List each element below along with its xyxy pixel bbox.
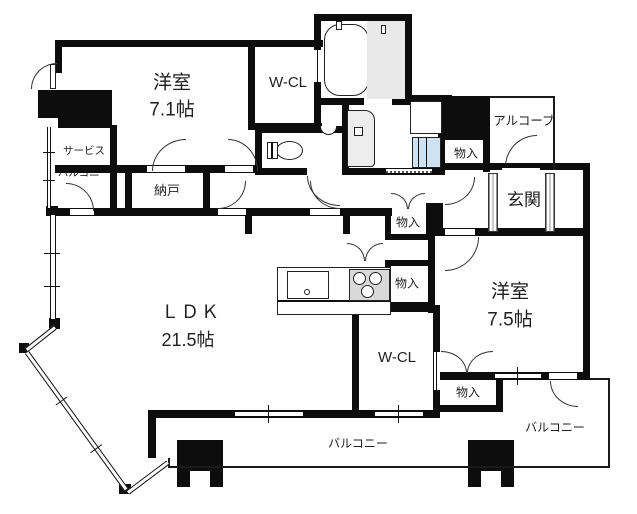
pillar xyxy=(58,118,112,128)
pillar xyxy=(177,471,190,487)
window-tick xyxy=(517,367,518,385)
stove-burner xyxy=(353,272,366,285)
door-opening xyxy=(218,209,246,215)
sliding-door xyxy=(386,169,432,173)
toilet-tank-line xyxy=(271,142,273,159)
vanity-bowl xyxy=(354,127,363,136)
sink-drain xyxy=(304,289,310,295)
window-tick xyxy=(44,286,60,287)
ldk-size-label: 21.5帖 xyxy=(161,331,214,351)
wall xyxy=(55,40,323,47)
genkan-side-frame xyxy=(545,173,555,232)
entrance-door-leaf xyxy=(498,163,540,168)
wall xyxy=(314,14,412,21)
wall xyxy=(405,14,412,102)
alcove-outline xyxy=(490,96,555,98)
pillar xyxy=(468,471,481,487)
balcony-right-label: バルコニー xyxy=(525,421,585,434)
storage-hall-label: 物入 xyxy=(396,216,420,229)
door-opening xyxy=(310,209,340,215)
wall xyxy=(148,410,156,458)
wall xyxy=(385,260,432,266)
closet-door-arc xyxy=(347,243,365,261)
shower-floor xyxy=(367,21,405,99)
washer-line xyxy=(418,138,419,167)
door-swing-arc xyxy=(228,139,258,171)
window xyxy=(50,215,56,319)
wall xyxy=(352,305,359,412)
wall xyxy=(438,163,502,170)
balcony-outline xyxy=(590,378,610,380)
balcony-main-label: バルコニー xyxy=(328,437,388,450)
window xyxy=(495,373,541,379)
stove-burner xyxy=(361,285,374,298)
window-tick xyxy=(268,405,269,423)
nando-label: 納戸 xyxy=(154,184,180,198)
floor-plan: 洋室 7.1帖 W-CL サービス バルコニー 納戸 物入 アルコーブ 玄関 物… xyxy=(0,0,637,514)
bedroom2-name-label: 洋室 xyxy=(491,283,529,304)
ldk-name-label: ＬＤＫ xyxy=(161,303,221,323)
door-opening xyxy=(445,229,475,235)
wall xyxy=(314,98,364,105)
vanity xyxy=(347,110,375,167)
washer-line xyxy=(426,138,427,167)
storage-bedroom2-label: 物入 xyxy=(456,386,480,399)
window-tick xyxy=(43,180,55,181)
shower-faucet-icon xyxy=(381,25,386,34)
door-swing-arc xyxy=(218,181,246,209)
genkan-label: 玄関 xyxy=(507,192,541,211)
door-swing-arc xyxy=(307,176,340,206)
window xyxy=(375,411,423,417)
wcl-top-label: W-CL xyxy=(269,75,307,92)
window-tick xyxy=(44,253,60,254)
door-opening xyxy=(314,50,322,82)
utility-box xyxy=(410,101,442,134)
wcl-bottom-label: W-CL xyxy=(378,350,416,367)
alcove-outline xyxy=(553,96,555,170)
door-swing-arc xyxy=(445,177,475,205)
wall xyxy=(433,405,503,412)
window xyxy=(47,127,51,208)
window-diagonal xyxy=(25,325,56,351)
door-line xyxy=(436,352,437,390)
door-opening xyxy=(434,352,440,390)
door-leaf xyxy=(50,64,56,89)
pillar xyxy=(501,471,514,487)
storage-kitchen-label: 物入 xyxy=(395,277,419,290)
door-line xyxy=(317,50,318,82)
window-tick xyxy=(398,405,399,423)
pillar xyxy=(38,90,112,118)
balcony-outline xyxy=(168,466,610,468)
balcony-outline xyxy=(608,378,610,468)
closet-door-arc xyxy=(408,193,425,209)
wall xyxy=(583,163,590,380)
service-balcony-label-1: サービス xyxy=(63,146,105,158)
window-diagonal xyxy=(126,460,169,494)
bedroom1-name-label: 洋室 xyxy=(153,74,191,95)
genkan-side-frame xyxy=(488,173,498,232)
stove-burner xyxy=(369,272,382,285)
closet-door-arc xyxy=(391,193,408,209)
window xyxy=(235,411,303,417)
window-tick xyxy=(43,152,55,153)
wall xyxy=(385,234,432,240)
wall xyxy=(255,168,307,175)
toilet-bowl xyxy=(276,141,303,160)
bath-faucet-icon xyxy=(336,21,342,30)
bedroom1-size-label: 7.1帖 xyxy=(149,101,194,122)
pipe-shaft xyxy=(445,96,490,140)
window-tick xyxy=(90,444,102,453)
closet-door-arc xyxy=(365,243,383,261)
wall xyxy=(248,40,255,130)
door-opening xyxy=(549,373,577,379)
bathtub xyxy=(324,24,369,96)
storage-entrance-label: 物入 xyxy=(454,147,478,160)
alcove-label: アルコーブ xyxy=(493,115,554,129)
wall xyxy=(110,125,117,213)
pillar xyxy=(210,471,223,487)
wall xyxy=(245,216,252,234)
bedroom2-size-label: 7.5帖 xyxy=(487,311,532,332)
wall xyxy=(392,98,412,105)
wall xyxy=(343,216,350,234)
